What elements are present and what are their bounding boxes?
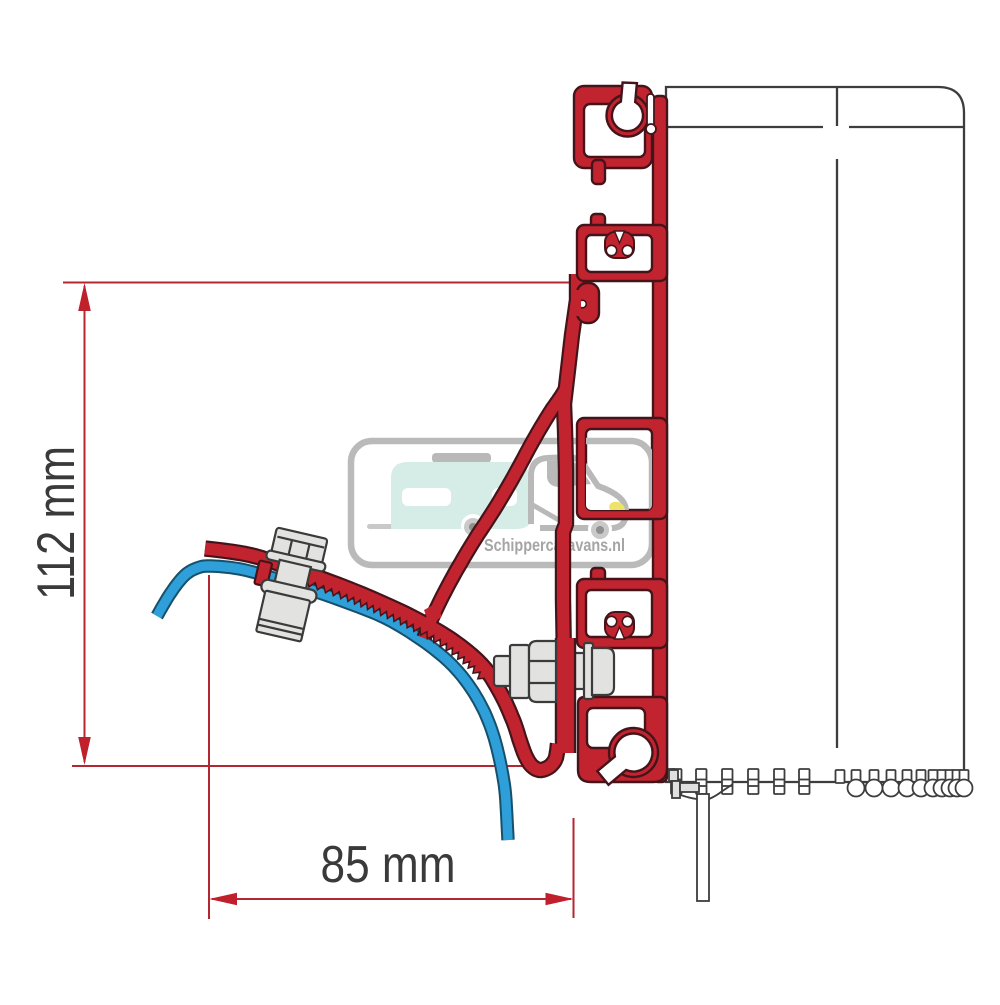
svg-text:112 mm: 112 mm	[27, 446, 86, 600]
svg-text:Schippercaravans.nl: Schippercaravans.nl	[484, 535, 625, 555]
svg-text:85 mm: 85 mm	[321, 836, 456, 894]
